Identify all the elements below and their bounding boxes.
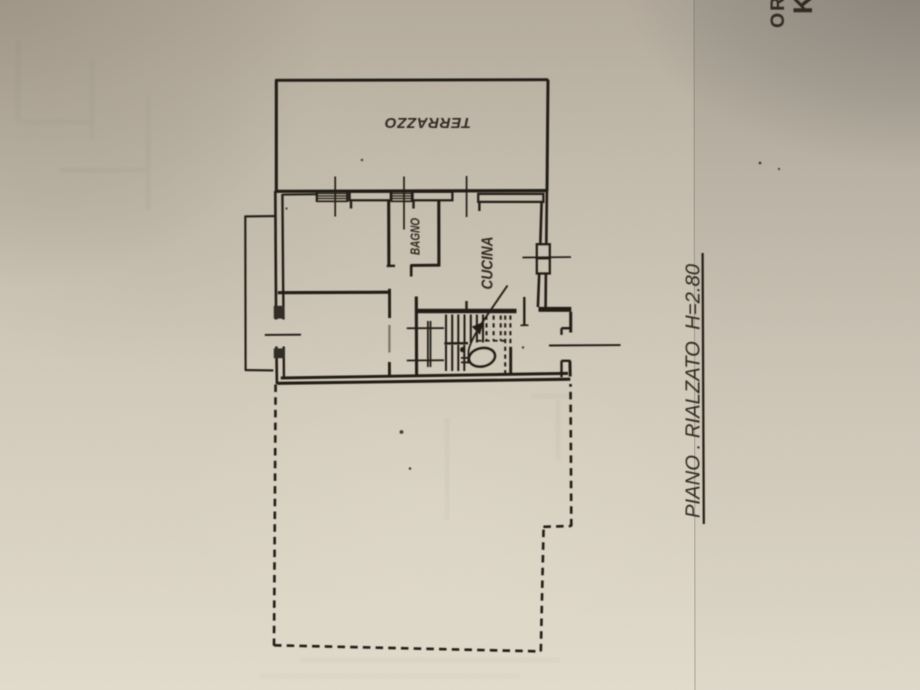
svg-text:K: K: [788, 0, 818, 14]
svg-text:CUCINA: CUCINA: [480, 237, 497, 290]
svg-text:BAGNO: BAGNO: [408, 217, 423, 255]
svg-text:TERRAZZO: TERRAZZO: [385, 114, 471, 131]
svg-text:ORIG: ORIG: [767, 0, 789, 28]
svg-text:PIANO . RIALZATO H=2.80: PIANO . RIALZATO H=2.80: [682, 263, 705, 518]
